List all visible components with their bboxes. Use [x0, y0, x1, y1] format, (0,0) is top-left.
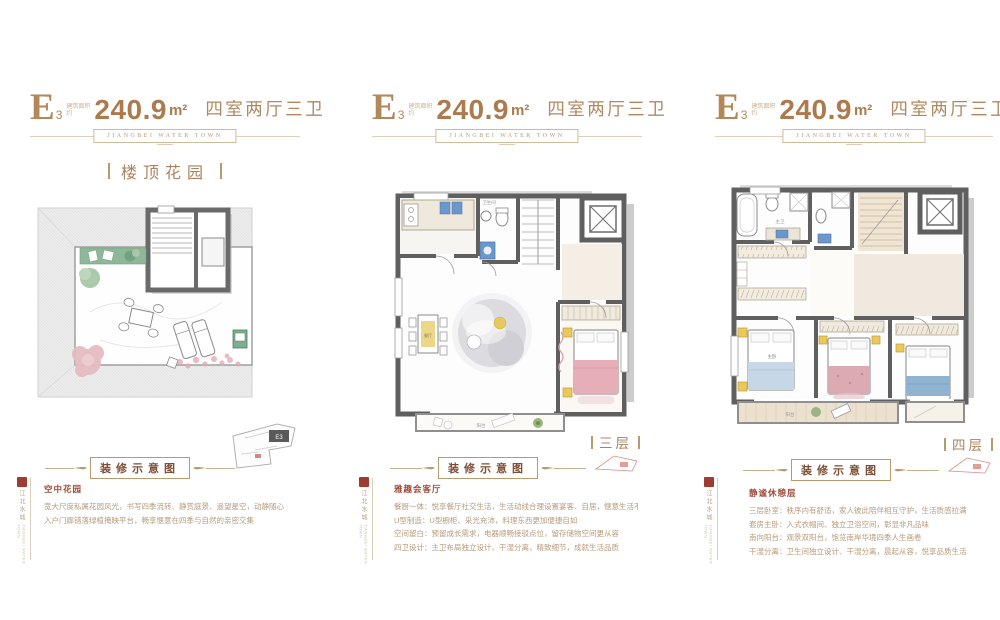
floorplan-level3: 卫生间 餐厅 — [386, 182, 638, 434]
unit-subscript: 3 — [741, 109, 748, 121]
page: E 3 建筑面积 约 240.9 m² 四室两厅三卫 JIANGBEI WATE… — [0, 0, 1000, 620]
keyplan-mini — [947, 455, 993, 475]
banner-ornament — [157, 144, 173, 145]
area-caption-top: 建筑面积 — [66, 104, 90, 111]
room-label-master: 主卧 — [768, 353, 777, 360]
decor-diamond — [894, 469, 907, 472]
area-caption: 建筑面积 约 — [751, 104, 775, 118]
area-caption: 建筑面积 约 — [66, 104, 90, 118]
seal-en-text: JIANGBEI WATER TOWN — [359, 524, 369, 570]
tag-bar — [944, 438, 946, 451]
decor-line — [907, 470, 939, 471]
floor-tag-text: 三层 — [599, 432, 632, 452]
rooms-label: 四室两厅三卫 — [547, 97, 667, 122]
desc-line: 三层卧室：秩序内有舒适，家人彼此陪伴相互守护，生活质感拉满 — [749, 504, 989, 518]
decor-label: 装修示意图 — [791, 459, 891, 481]
area-unit: m² — [854, 99, 872, 122]
area-caption-top: 建筑面积 — [751, 104, 775, 111]
banner-text: JIANGBEI WATER TOWN — [782, 129, 925, 143]
unit-header: E 3 建筑面积 约 240.9 m² 四室两厅三卫 — [715, 85, 993, 122]
seal-en-text: JIANGBEI WATER TOWN — [704, 524, 714, 570]
decor-label: 装修示意图 — [438, 457, 538, 479]
decor-divider: 装修示意图 — [45, 459, 235, 477]
rooms-label: 四室两厅三卫 — [890, 97, 1000, 122]
desc-line: U型制造：U型橱柜、采光充沛，料理东西更加便捷自如 — [394, 514, 638, 528]
decor-divider: 装修示意图 — [390, 459, 586, 477]
area-caption-bottom: 约 — [66, 111, 90, 118]
desc-line: 餐厨一体：悦享餐厅社交生活，生活动线合理设置宴客、自居，惬意生活不打扰 — [394, 500, 638, 514]
area-caption-bottom: 约 — [751, 111, 775, 118]
unit-letter: E — [372, 93, 397, 122]
floor-tag-level4: 四层 — [944, 434, 993, 454]
unit-header: E 3 建筑面积 约 240.9 m² 四室两厅三卫 — [372, 85, 642, 122]
banner-ornament — [499, 144, 515, 145]
banner-ornament — [846, 144, 862, 145]
decor-diamond — [775, 469, 788, 472]
seal: 江北水城 JIANGBEI WATER TOWN — [701, 477, 716, 567]
seal-cn-text: 江北水城 — [704, 490, 713, 522]
seal-cn-text: 江北水城 — [359, 490, 368, 522]
decor-diamond — [193, 467, 206, 470]
decor-line — [554, 468, 586, 469]
rooms-label: 四室两厅三卫 — [205, 97, 325, 122]
desc-title: 静谧休憩层 — [749, 487, 989, 499]
seal-rule — [30, 478, 31, 560]
description: 静谧休憩层 三层卧室：秩序内有舒适，家人彼此陪伴相互守护，生活质感拉满 套房主卧… — [749, 487, 989, 558]
unit-letter: E — [30, 93, 55, 122]
area-value: 240.9 — [779, 97, 852, 122]
decor-line — [206, 468, 235, 469]
tag-bar — [220, 163, 222, 179]
decor-diamond — [74, 467, 87, 470]
decor-label: 装修示意图 — [90, 457, 190, 479]
unit-letter: E — [715, 93, 740, 122]
seal-icon — [704, 477, 714, 487]
decor-line — [743, 470, 775, 471]
seal-cn-text: 江北水城 — [17, 490, 26, 522]
banner-text: JIANGBEI WATER TOWN — [93, 129, 236, 143]
desc-line: 宽大尺度私属花园风光，书写四季流转、静赏庭景、遥望星空，动静随心 — [44, 500, 296, 514]
unit-subscript: 3 — [56, 109, 63, 121]
tag-bar — [108, 163, 110, 179]
desc-line: 入户门廊错落绿植掩映平台，畅享惬意在四季与自然的亲密交集 — [44, 514, 296, 528]
seal-icon — [17, 477, 27, 487]
tag-bar — [991, 438, 993, 451]
room-label-bath: 卫生间 — [482, 199, 496, 206]
area-caption-top: 建筑面积 — [408, 104, 432, 111]
keyplan-unit-label: E3 — [275, 435, 283, 441]
description: 雅趣会客厅 餐厨一体：悦享餐厅社交生活，生活动线合理设置宴客、自居，惬意生活不打… — [394, 483, 638, 554]
seal-en-text: JIANGBEI WATER TOWN — [17, 524, 27, 570]
desc-line: 干湿分离：卫生间独立设计、干湿分离，晨起从容，悦享品质生活 — [749, 545, 989, 559]
floor-tag-level3: 三层 — [591, 432, 640, 452]
floorplan-roof-garden: E3 — [30, 190, 300, 480]
keyplan-mini — [594, 453, 640, 473]
tag-bar — [638, 436, 640, 449]
room-label-balcony: 阳台 — [477, 422, 486, 429]
floorplan-level4: 主卫 主卧 — [720, 180, 982, 432]
floor-tag-text: 四层 — [952, 434, 985, 454]
brand-banner: JIANGBEI WATER TOWN — [372, 129, 642, 147]
seal: 江北水城 JIANGBEI WATER TOWN — [356, 477, 371, 567]
unit-subscript: 3 — [398, 109, 405, 121]
area-caption-bottom: 约 — [408, 111, 432, 118]
decor-diamond — [541, 467, 554, 470]
desc-title: 雅趣会客厅 — [394, 483, 638, 495]
floor-tag-roof: 楼顶花园 — [30, 159, 300, 183]
decor-diamond — [422, 467, 435, 470]
tag-bar — [591, 436, 593, 449]
desc-line: 南向阳台：观景双阳台，饱览南岸华境四季人生画卷 — [749, 531, 989, 545]
area-caption: 建筑面积 约 — [408, 104, 432, 118]
room-label-bath: 主卫 — [776, 218, 785, 224]
desc-line: 空间留白：预留成长需求，电器顺畅接驳点位，留存储物空间更从容 — [394, 527, 638, 541]
seal: 江北水城 JIANGBEI WATER TOWN — [14, 477, 29, 567]
panel-roof-garden: E 3 建筑面积 约 240.9 m² 四室两厅三卫 JIANGBEI WATE… — [30, 85, 300, 610]
brand-banner: JIANGBEI WATER TOWN — [715, 129, 993, 147]
panel-level4: E 3 建筑面积 约 240.9 m² 四室两厅三卫 JIANGBEI WATE… — [715, 85, 993, 610]
decor-divider: 装修示意图 — [743, 461, 939, 479]
keyplan: E3 — [233, 424, 295, 468]
desc-line: 套房主卧：入式衣帽间、独立卫浴空间，彰显非凡品味 — [749, 518, 989, 532]
panel-level3: E 3 建筑面积 约 240.9 m² 四室两厅三卫 JIANGBEI WATE… — [372, 85, 642, 610]
seal-rule — [717, 478, 718, 560]
area-value: 240.9 — [94, 97, 167, 122]
desc-line: 四卫设计：主卫布局独立设计、干湿分离，精致细节，成就生活品质 — [394, 541, 638, 555]
area-unit: m² — [169, 99, 187, 122]
decor-line — [390, 468, 422, 469]
decor-line — [45, 468, 74, 469]
room-label-balcony: 阳台 — [786, 411, 795, 418]
room-label-dining: 餐厅 — [424, 332, 432, 338]
description: 空中花园 宽大尺度私属花园风光，书写四季流转、静赏庭景、遥望星空，动静随心 入户… — [44, 483, 296, 527]
desc-title: 空中花园 — [44, 483, 296, 495]
unit-header: E 3 建筑面积 约 240.9 m² 四室两厅三卫 — [30, 85, 300, 122]
brand-banner: JIANGBEI WATER TOWN — [30, 129, 300, 147]
area-value: 240.9 — [436, 97, 509, 122]
seal-rule — [372, 478, 373, 560]
area-unit: m² — [511, 99, 529, 122]
banner-text: JIANGBEI WATER TOWN — [435, 129, 578, 143]
floor-tag-text: 楼顶花园 — [121, 159, 209, 183]
seal-icon — [359, 477, 369, 487]
